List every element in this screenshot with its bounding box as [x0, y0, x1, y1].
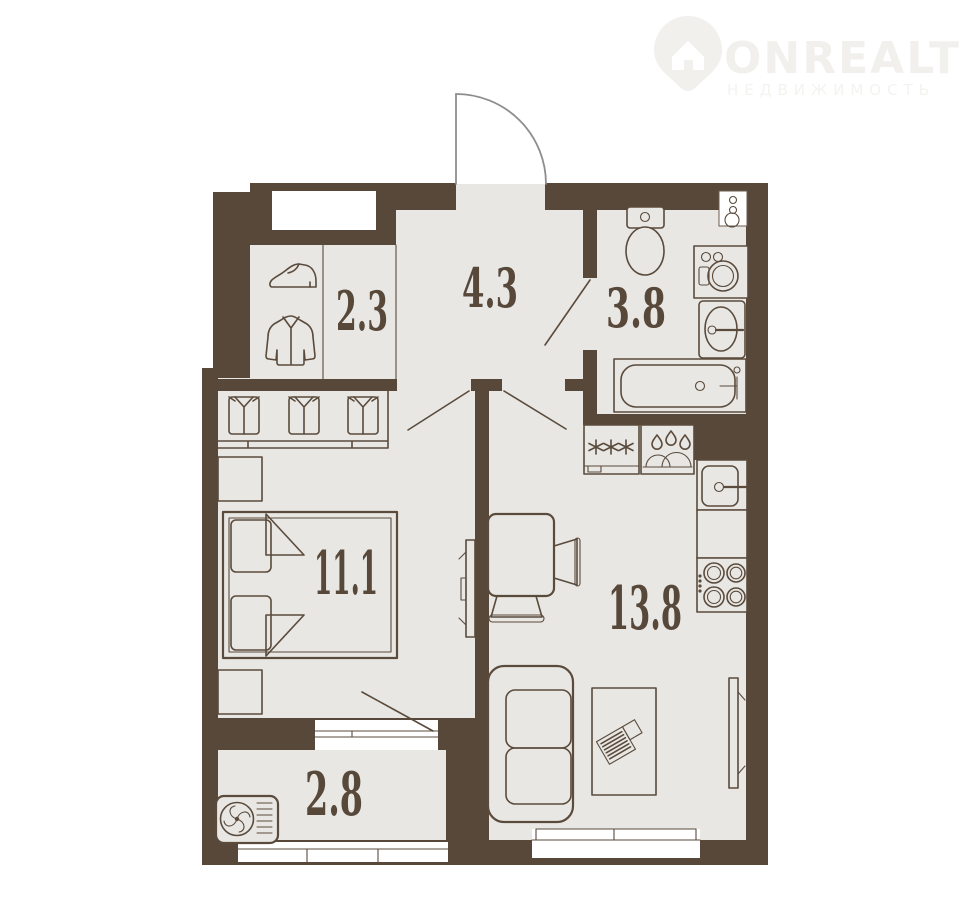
bathroom-sink [699, 301, 745, 358]
wall-bedroom-top [213, 379, 397, 391]
nightstand-top [218, 457, 262, 501]
wall-bathroom-upper [583, 210, 597, 278]
room-area-bathroom: 3.8 [606, 276, 666, 340]
entrance-door-arc [456, 94, 546, 184]
room-area-corridor: 4.3 [462, 256, 518, 320]
toilet [626, 207, 664, 275]
living-room-window [532, 829, 700, 858]
dining-table [488, 514, 554, 596]
room-area-hallway: 2.3 [336, 279, 388, 343]
coffee-table [592, 688, 656, 795]
washing-machine [694, 246, 748, 298]
logo-brand-text: ONREALT [724, 33, 960, 84]
kitchen-counter [697, 510, 747, 558]
electrical-panel [719, 191, 747, 227]
balcony-window [238, 842, 448, 862]
wall-niche [272, 191, 376, 230]
onrealt-logo: ONREALT НЕДВИЖИМОСТЬ [654, 16, 960, 99]
wall-center-cap-left [471, 379, 502, 391]
room-area-bedroom: 11.1 [314, 539, 378, 609]
floor-plan-image: ONREALT НЕДВИЖИМОСТЬ [0, 0, 960, 910]
snowflake-icon [589, 440, 633, 454]
wall-right [746, 210, 768, 865]
wall-bathroom-bottom [583, 414, 693, 425]
logo-tagline-text: НЕДВИЖИМОСТЬ [727, 81, 935, 99]
sofa [488, 666, 573, 822]
floor-entrance-threshold [456, 184, 545, 214]
wall-left-upper [213, 192, 250, 378]
entrance-door [456, 94, 546, 184]
nightstand-bottom [218, 670, 262, 714]
bathtub [614, 359, 746, 412]
wall-left-lower [202, 368, 218, 865]
wall-balcony-right [446, 745, 489, 845]
wall-kitchen-jut [693, 414, 768, 460]
air-conditioner [216, 796, 278, 843]
room-area-balcony: 2.8 [305, 760, 363, 830]
room-area-kitchen-living: 13.8 [608, 574, 682, 644]
fridge [584, 425, 639, 474]
dish-drying-rack [641, 425, 694, 474]
wall-bathroom-lower [583, 350, 597, 425]
stove [697, 558, 747, 612]
kitchen-sink [697, 460, 747, 510]
